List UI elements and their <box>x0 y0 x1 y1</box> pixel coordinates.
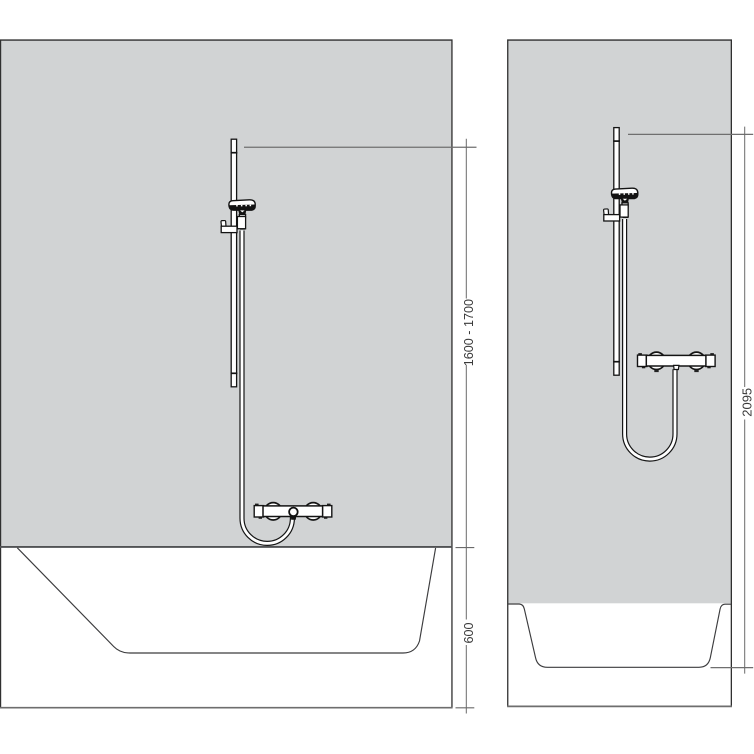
svg-text:600: 600 <box>462 622 476 643</box>
svg-text:2095: 2095 <box>740 388 754 417</box>
svg-text:1600 - 1700: 1600 - 1700 <box>462 299 476 366</box>
